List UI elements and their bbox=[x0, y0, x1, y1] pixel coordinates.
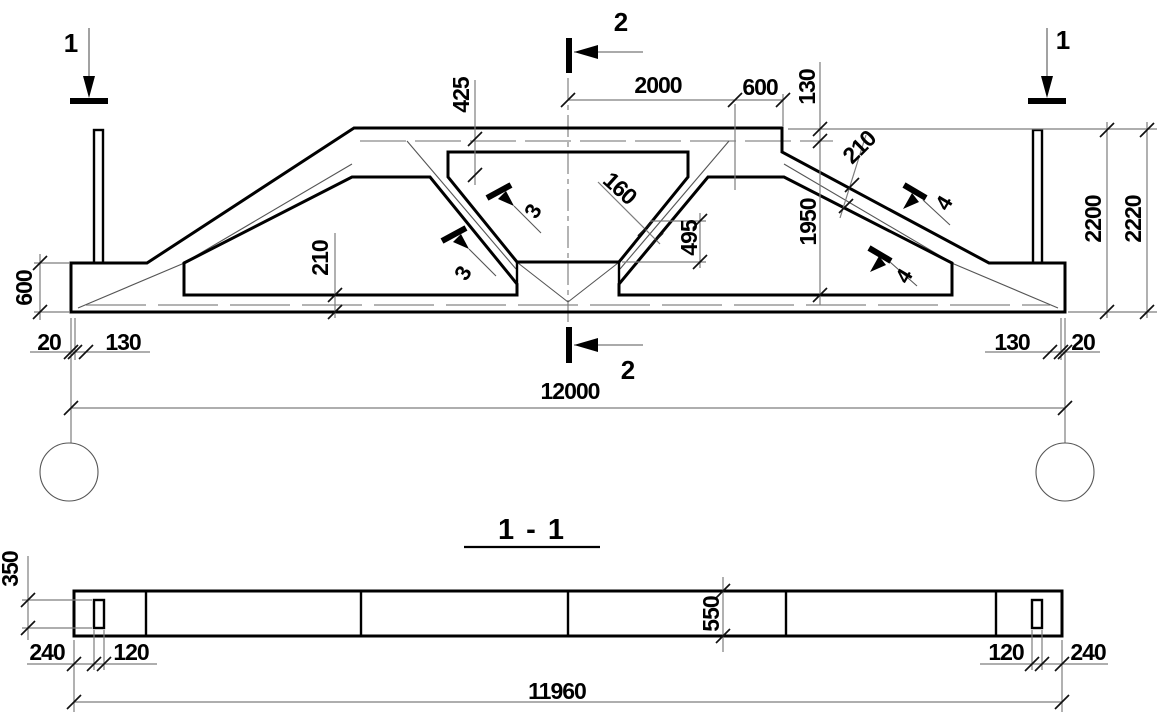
label-section-3-upper: 3 bbox=[519, 199, 547, 222]
node-v-left bbox=[518, 263, 568, 302]
right-block-axis bbox=[784, 164, 1058, 308]
dim-495: 495 bbox=[676, 219, 702, 256]
left-block-axis bbox=[78, 164, 352, 308]
section-bar bbox=[74, 591, 1062, 636]
dim-2000: 2000 bbox=[634, 72, 681, 98]
right-grid-bubble bbox=[1036, 443, 1094, 501]
elevation-view: 1 1 2 2 3 3 4 4 2000 600 130 1950 2200 2… bbox=[11, 7, 1157, 501]
dim-20-left: 20 bbox=[37, 329, 61, 355]
dim-130-right: 130 bbox=[794, 69, 820, 105]
dim-120-right: 120 bbox=[988, 639, 1024, 665]
drawing-canvas: 1 1 2 2 3 3 4 4 2000 600 130 1950 2200 2… bbox=[0, 0, 1161, 718]
dim-11960: 11960 bbox=[528, 678, 586, 704]
dim-600-top: 600 bbox=[742, 74, 778, 100]
left-loop-slot bbox=[94, 600, 104, 628]
label-section-1-right: 1 bbox=[1056, 25, 1070, 55]
section-1-1-view: 1 - 1 bbox=[0, 514, 1108, 712]
section-marker-2-top bbox=[566, 38, 643, 73]
dim-130-bottom-right: 130 bbox=[994, 329, 1030, 355]
dim-2200: 2200 bbox=[1080, 195, 1106, 242]
truss-technical-drawing: 1 1 2 2 3 3 4 4 2000 600 130 1950 2200 2… bbox=[0, 0, 1161, 718]
left-lifting-loop bbox=[94, 130, 103, 263]
dim-20-bottom-right: 20 bbox=[1071, 329, 1095, 355]
right-web-axis bbox=[620, 141, 729, 269]
node-v-right bbox=[568, 263, 618, 302]
dim-160: 160 bbox=[598, 167, 642, 210]
dim-120-left: 120 bbox=[113, 639, 149, 665]
section-view-title: 1 - 1 bbox=[498, 514, 566, 546]
left-web-axis bbox=[407, 141, 516, 269]
dim-210-slope: 210 bbox=[837, 125, 881, 169]
dim-240-right: 240 bbox=[1070, 639, 1106, 665]
label-section-3-lower: 3 bbox=[449, 261, 477, 284]
right-lifting-loop bbox=[1033, 130, 1042, 263]
dim-350: 350 bbox=[0, 551, 23, 587]
label-section-2-top: 2 bbox=[614, 7, 628, 37]
dim-600-left: 600 bbox=[11, 270, 37, 306]
dim-130-left: 130 bbox=[105, 329, 141, 355]
dim-550: 550 bbox=[698, 596, 724, 632]
label-section-2-bottom: 2 bbox=[621, 355, 635, 385]
left-grid-bubble bbox=[40, 443, 98, 501]
dim-2220: 2220 bbox=[1120, 195, 1146, 242]
dim-240-left: 240 bbox=[29, 639, 65, 665]
right-loop-slot bbox=[1032, 600, 1042, 628]
label-section-1-left: 1 bbox=[64, 28, 78, 58]
dim-1950: 1950 bbox=[795, 198, 821, 245]
section-texts: 350 240 120 550 120 240 11960 bbox=[0, 551, 1106, 704]
dim-210-chord: 210 bbox=[307, 240, 333, 276]
dim-425: 425 bbox=[448, 76, 474, 113]
dim-12000: 12000 bbox=[541, 378, 600, 404]
